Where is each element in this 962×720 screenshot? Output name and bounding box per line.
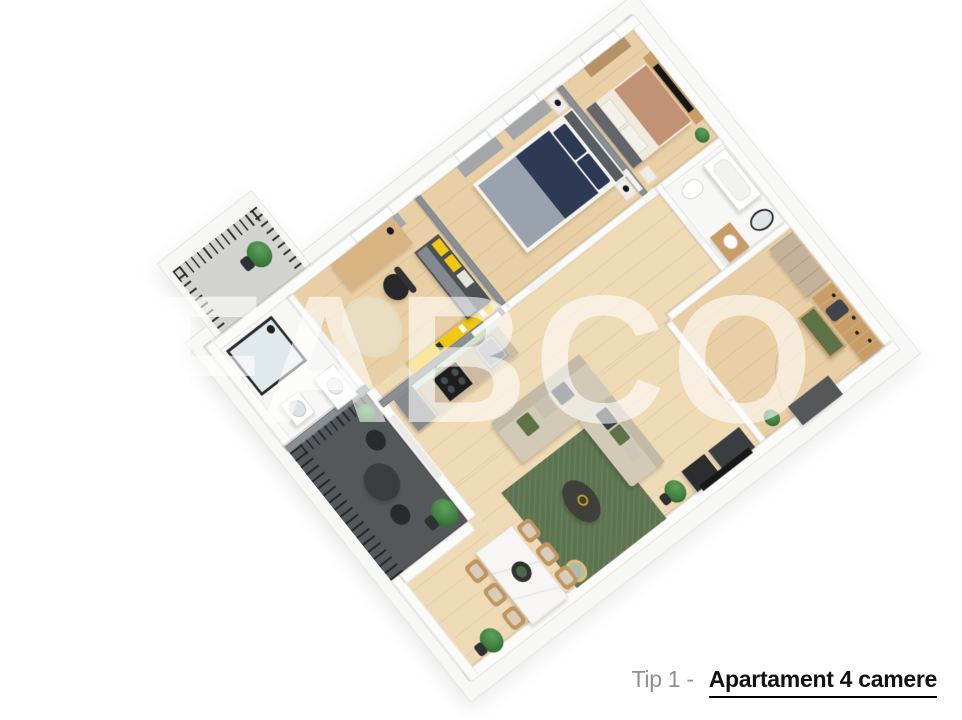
caption-apartment-title: Apartament 4 camere [709, 666, 937, 698]
caption-type-label: Tip 1 - [632, 666, 694, 693]
caption: Tip 1 - Apartament 4 camere [632, 666, 937, 698]
watermark-text: FABCO [152, 268, 819, 450]
